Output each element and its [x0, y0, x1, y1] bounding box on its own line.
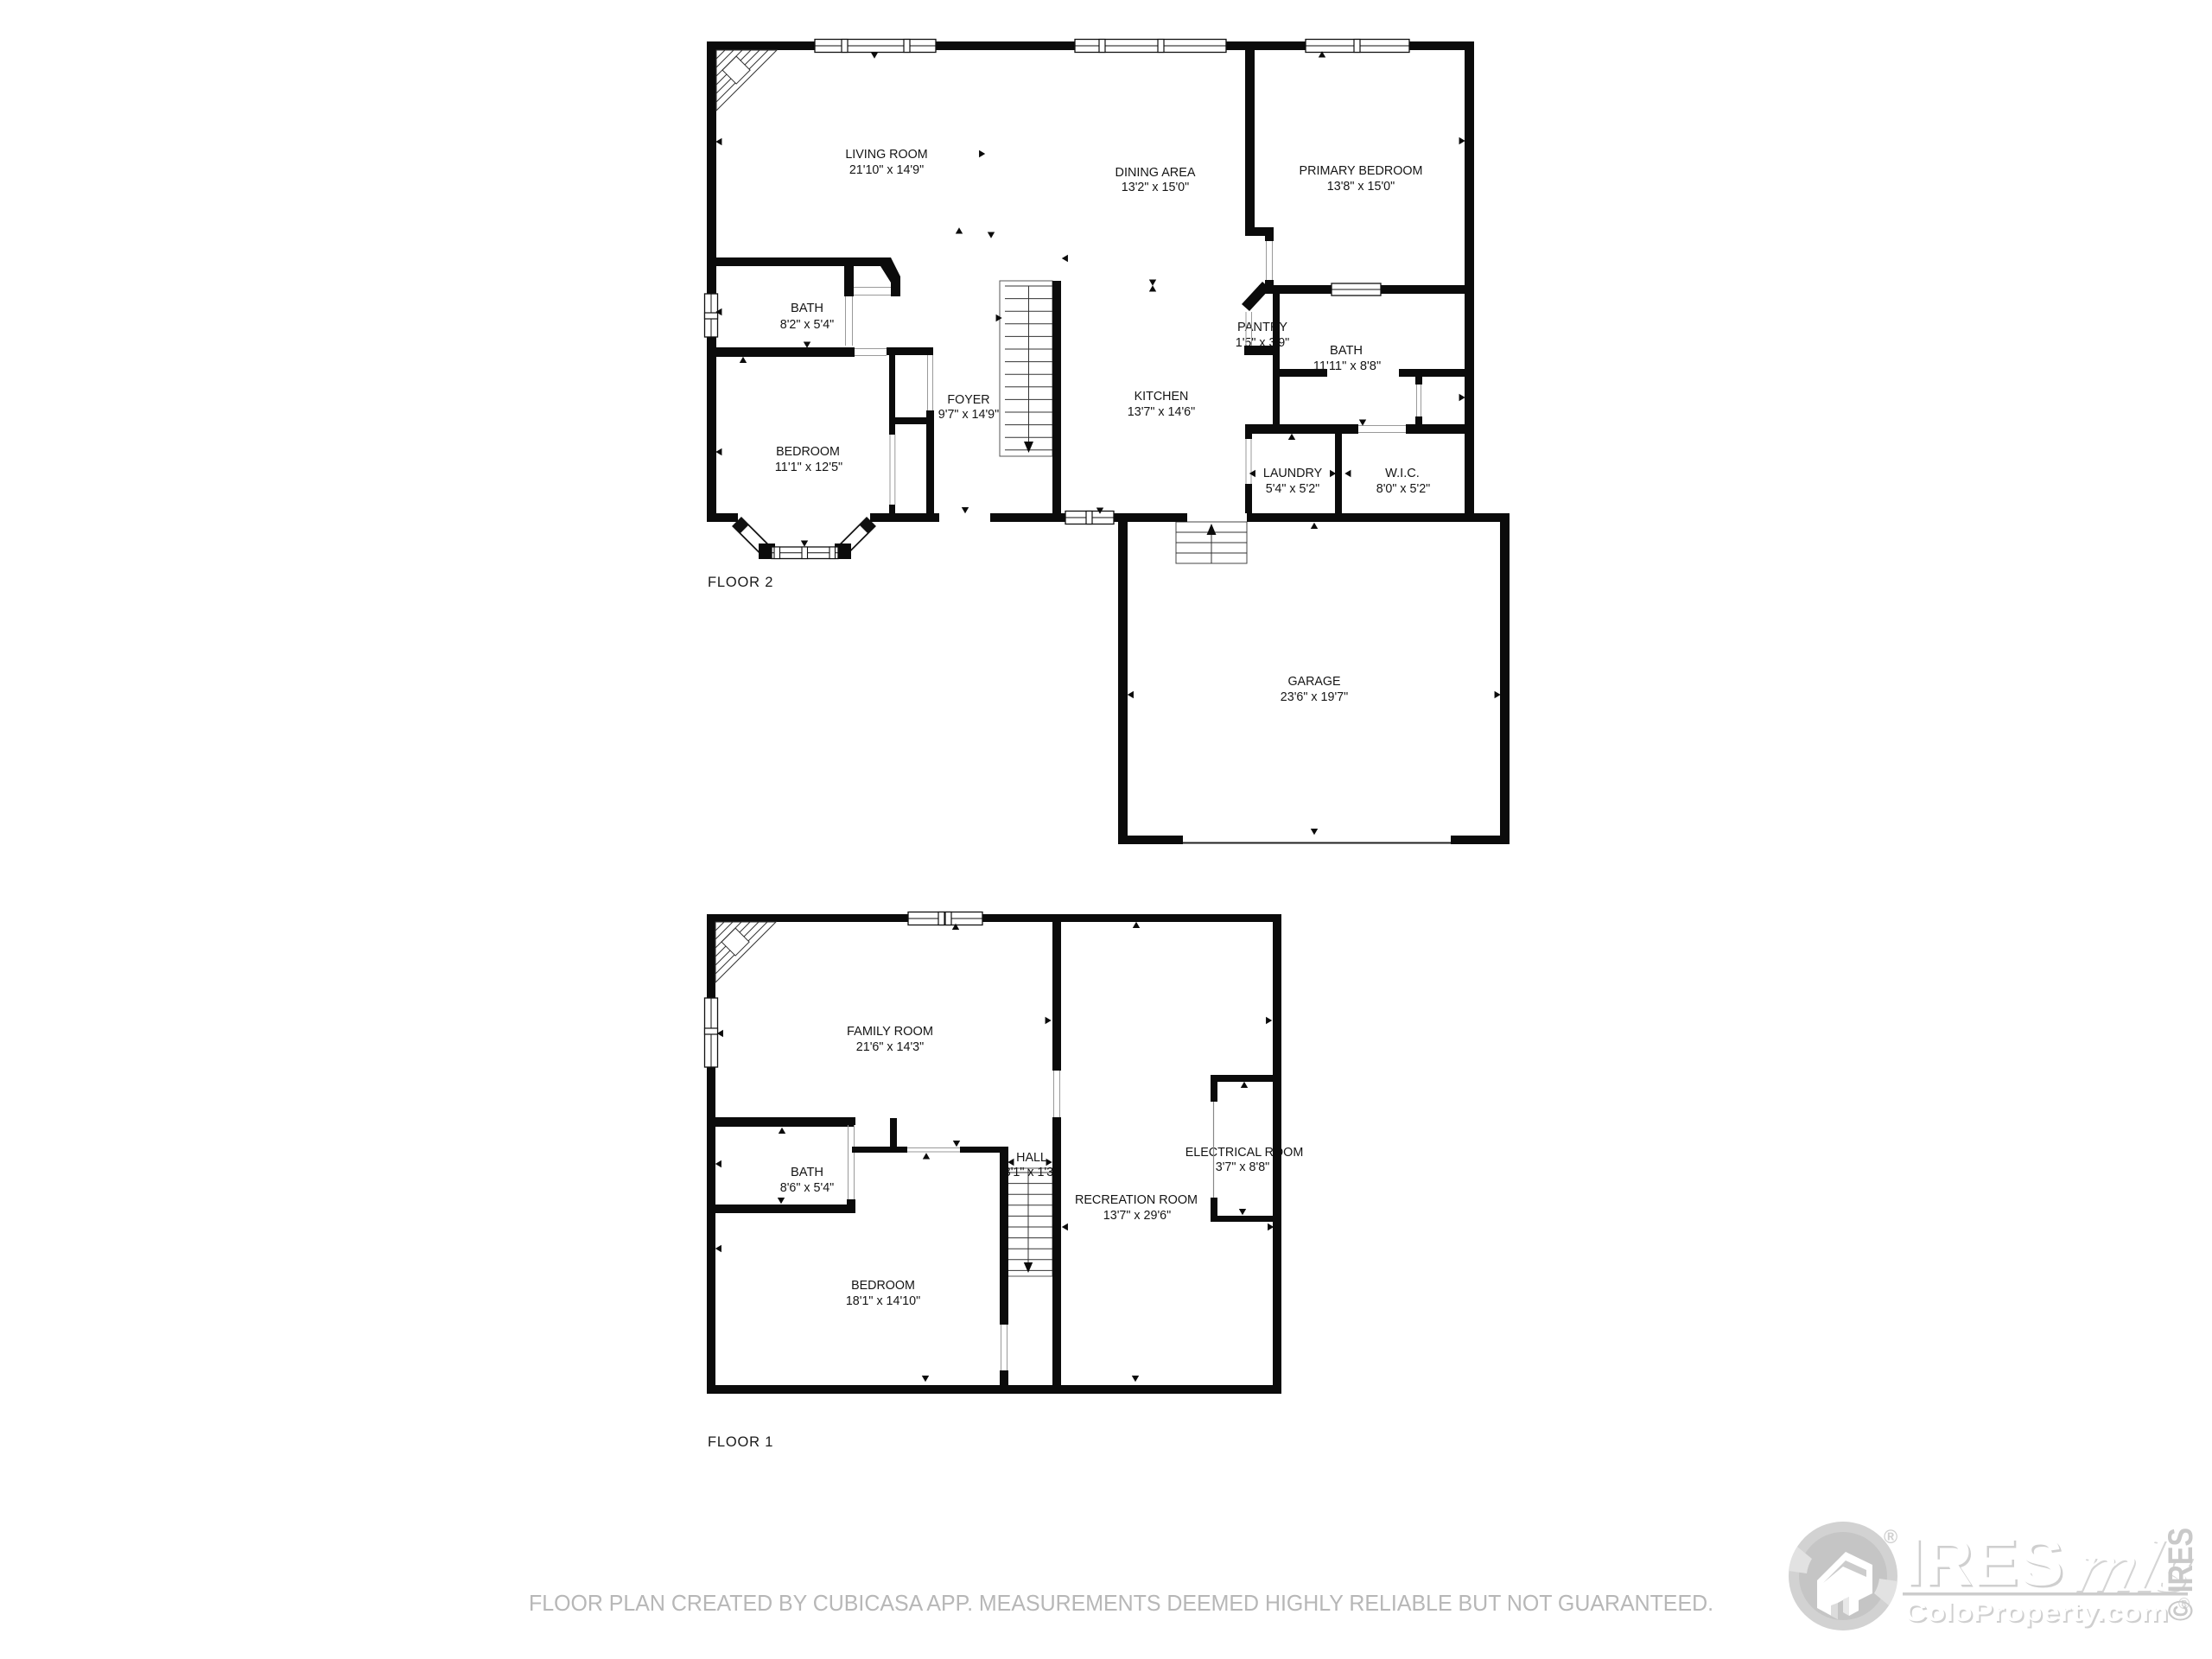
svg-text:FAMILY ROOM: FAMILY ROOM — [847, 1024, 933, 1039]
svg-text:5'4" x 5'2": 5'4" x 5'2" — [1266, 481, 1320, 496]
svg-text:FLOOR 2: FLOOR 2 — [708, 575, 773, 590]
svg-text:KITCHEN: KITCHEN — [1135, 389, 1189, 404]
svg-text:21'6" x 14'3": 21'6" x 14'3" — [856, 1039, 924, 1054]
svg-text:8'0" x 5'2": 8'0" x 5'2" — [1376, 481, 1431, 496]
svg-text:ELECTRICAL ROOM: ELECTRICAL ROOM — [1185, 1145, 1304, 1160]
svg-text:BEDROOM: BEDROOM — [776, 444, 840, 459]
svg-text:BATH: BATH — [1330, 343, 1363, 358]
svg-text:18'1" x 14'10": 18'1" x 14'10" — [846, 1294, 920, 1308]
svg-text:FLOOR PLAN CREATED BY CUBICASA: FLOOR PLAN CREATED BY CUBICASA APP. MEAS… — [529, 1590, 1713, 1616]
svg-text:PRIMARY BEDROOM: PRIMARY BEDROOM — [1300, 163, 1423, 178]
svg-text:13'7" x 29'6": 13'7" x 29'6" — [1103, 1208, 1171, 1223]
svg-text:W.I.C.: W.I.C. — [1385, 466, 1420, 480]
svg-text:BATH: BATH — [791, 301, 823, 315]
svg-text:3'7" x 8'8": 3'7" x 8'8" — [1216, 1160, 1270, 1174]
svg-text:11'1" x 12'5": 11'1" x 12'5" — [775, 460, 842, 474]
svg-text:23'6" x 19'7": 23'6" x 19'7" — [1281, 690, 1348, 704]
svg-text:13'2" x 15'0": 13'2" x 15'0" — [1122, 180, 1189, 194]
svg-text:13'8" x 15'0": 13'8" x 15'0" — [1327, 179, 1395, 194]
svg-text:DINING AREA: DINING AREA — [1116, 165, 1197, 180]
svg-text:FOYER: FOYER — [947, 392, 989, 407]
svg-text:8'2" x 5'4": 8'2" x 5'4" — [780, 317, 835, 332]
svg-text:RECREATION ROOM: RECREATION ROOM — [1075, 1192, 1198, 1207]
svg-text:HALL: HALL — [1016, 1150, 1047, 1165]
svg-text:© IRES: © IRES — [2162, 1528, 2200, 1621]
svg-text:IRES: IRES — [1904, 1523, 2063, 1599]
svg-text:21'10" x 14'9": 21'10" x 14'9" — [849, 162, 924, 177]
svg-text:PANTRY: PANTRY — [1237, 320, 1287, 334]
svg-text:LIVING ROOM: LIVING ROOM — [845, 147, 927, 162]
svg-text:8'6" x 5'4": 8'6" x 5'4" — [780, 1180, 835, 1195]
svg-text:9'7" x 14'9": 9'7" x 14'9" — [938, 407, 999, 422]
svg-text:GARAGE: GARAGE — [1287, 674, 1340, 689]
svg-text:LAUNDRY: LAUNDRY — [1263, 466, 1322, 480]
svg-text:®: ® — [1884, 1526, 1897, 1548]
svg-text:BATH: BATH — [791, 1165, 823, 1179]
svg-text:ColoProperty.com: ColoProperty.com — [1904, 1597, 2168, 1627]
svg-text:3'1" x 1'3": 3'1" x 1'3" — [1004, 1165, 1058, 1179]
svg-text:FLOOR 1: FLOOR 1 — [708, 1434, 773, 1450]
svg-text:BEDROOM: BEDROOM — [851, 1278, 915, 1293]
svg-text:13'7" x 14'6": 13'7" x 14'6" — [1128, 404, 1195, 419]
